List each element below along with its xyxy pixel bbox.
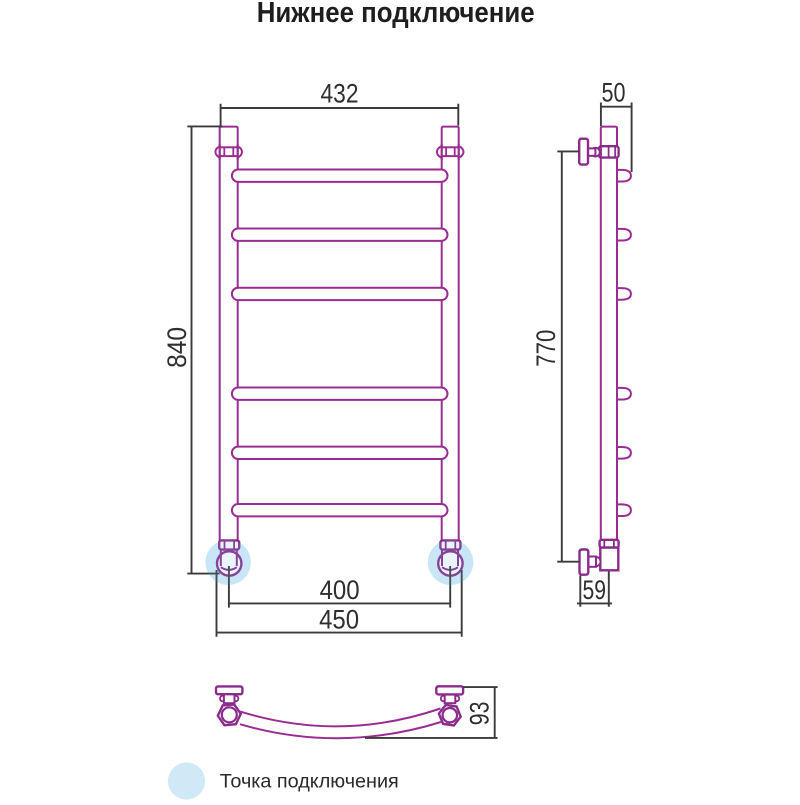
svg-text:450: 450	[319, 604, 359, 634]
svg-text:Точка подключения: Точка подключения	[220, 770, 399, 792]
svg-text:50: 50	[602, 78, 626, 108]
svg-text:432: 432	[321, 79, 359, 109]
svg-text:840: 840	[162, 327, 192, 368]
svg-text:93: 93	[465, 702, 495, 726]
svg-text:59: 59	[583, 575, 607, 605]
svg-text:Нижнее подключение: Нижнее подключение	[257, 0, 535, 29]
svg-text:770: 770	[531, 330, 561, 367]
svg-text:400: 400	[320, 575, 360, 605]
